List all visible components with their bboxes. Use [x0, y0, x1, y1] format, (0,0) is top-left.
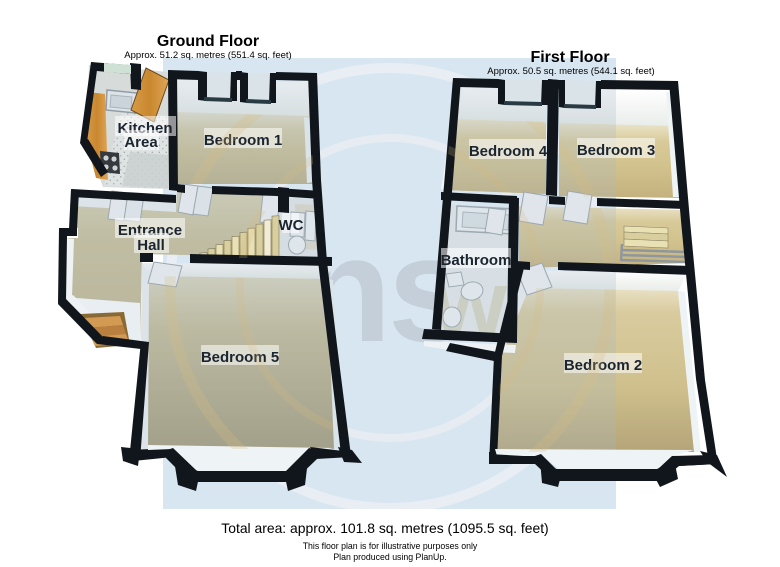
svg-text:First Floor: First Floor	[530, 49, 609, 66]
svg-text:Bedroom 4: Bedroom 4	[469, 143, 548, 160]
svg-text:Ground Floor: Ground Floor	[157, 33, 259, 50]
svg-text:Hall: Hall	[137, 237, 165, 254]
svg-text:Plan produced using PlanUp.: Plan produced using PlanUp.	[333, 552, 446, 562]
svg-text:Total area: approx. 101.8 sq.: Total area: approx. 101.8 sq. metres (10…	[221, 520, 548, 536]
svg-text:Approx. 51.2 sq. metres (551.4: Approx. 51.2 sq. metres (551.4 sq. feet)	[124, 50, 291, 61]
svg-text:Bathroom: Bathroom	[441, 252, 512, 269]
svg-text:Approx. 50.5 sq. metres (544.1: Approx. 50.5 sq. metres (544.1 sq. feet)	[487, 66, 654, 77]
svg-text:Bedroom 3: Bedroom 3	[577, 142, 655, 159]
svg-text:This floor plan is for illustr: This floor plan is for illustrative purp…	[303, 541, 478, 551]
svg-text:Area: Area	[124, 134, 158, 151]
svg-text:Bedroom 5: Bedroom 5	[201, 349, 279, 366]
svg-text:WC: WC	[279, 217, 304, 234]
